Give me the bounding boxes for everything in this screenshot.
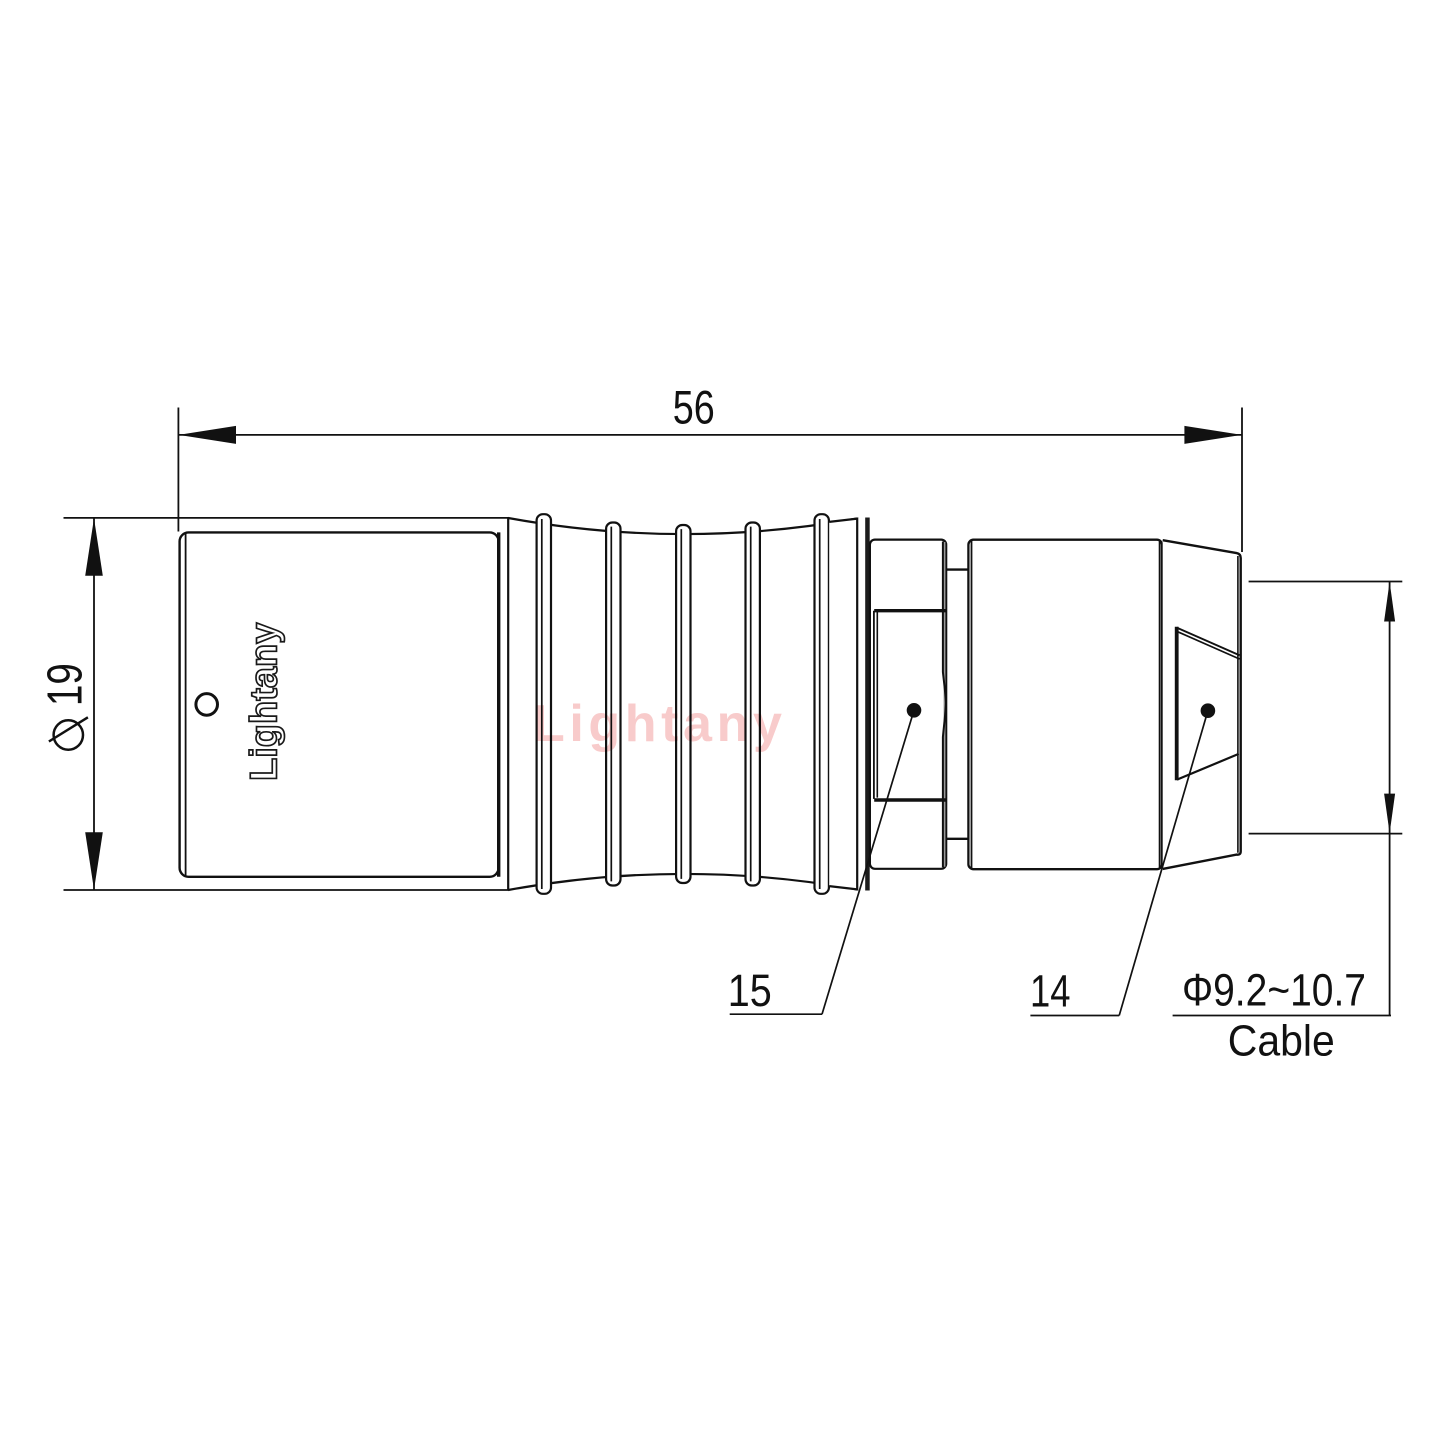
svg-text:Cable: Cable <box>1228 1016 1335 1065</box>
svg-text:15: 15 <box>728 965 772 1016</box>
svg-text:Φ9.2~10.7: Φ9.2~10.7 <box>1182 965 1366 1016</box>
svg-text:Lightany: Lightany <box>533 695 786 753</box>
svg-text:14: 14 <box>1030 966 1071 1017</box>
svg-text:19: 19 <box>38 663 92 706</box>
svg-text:56: 56 <box>673 381 715 434</box>
svg-text:Lightany: Lightany <box>244 623 286 781</box>
